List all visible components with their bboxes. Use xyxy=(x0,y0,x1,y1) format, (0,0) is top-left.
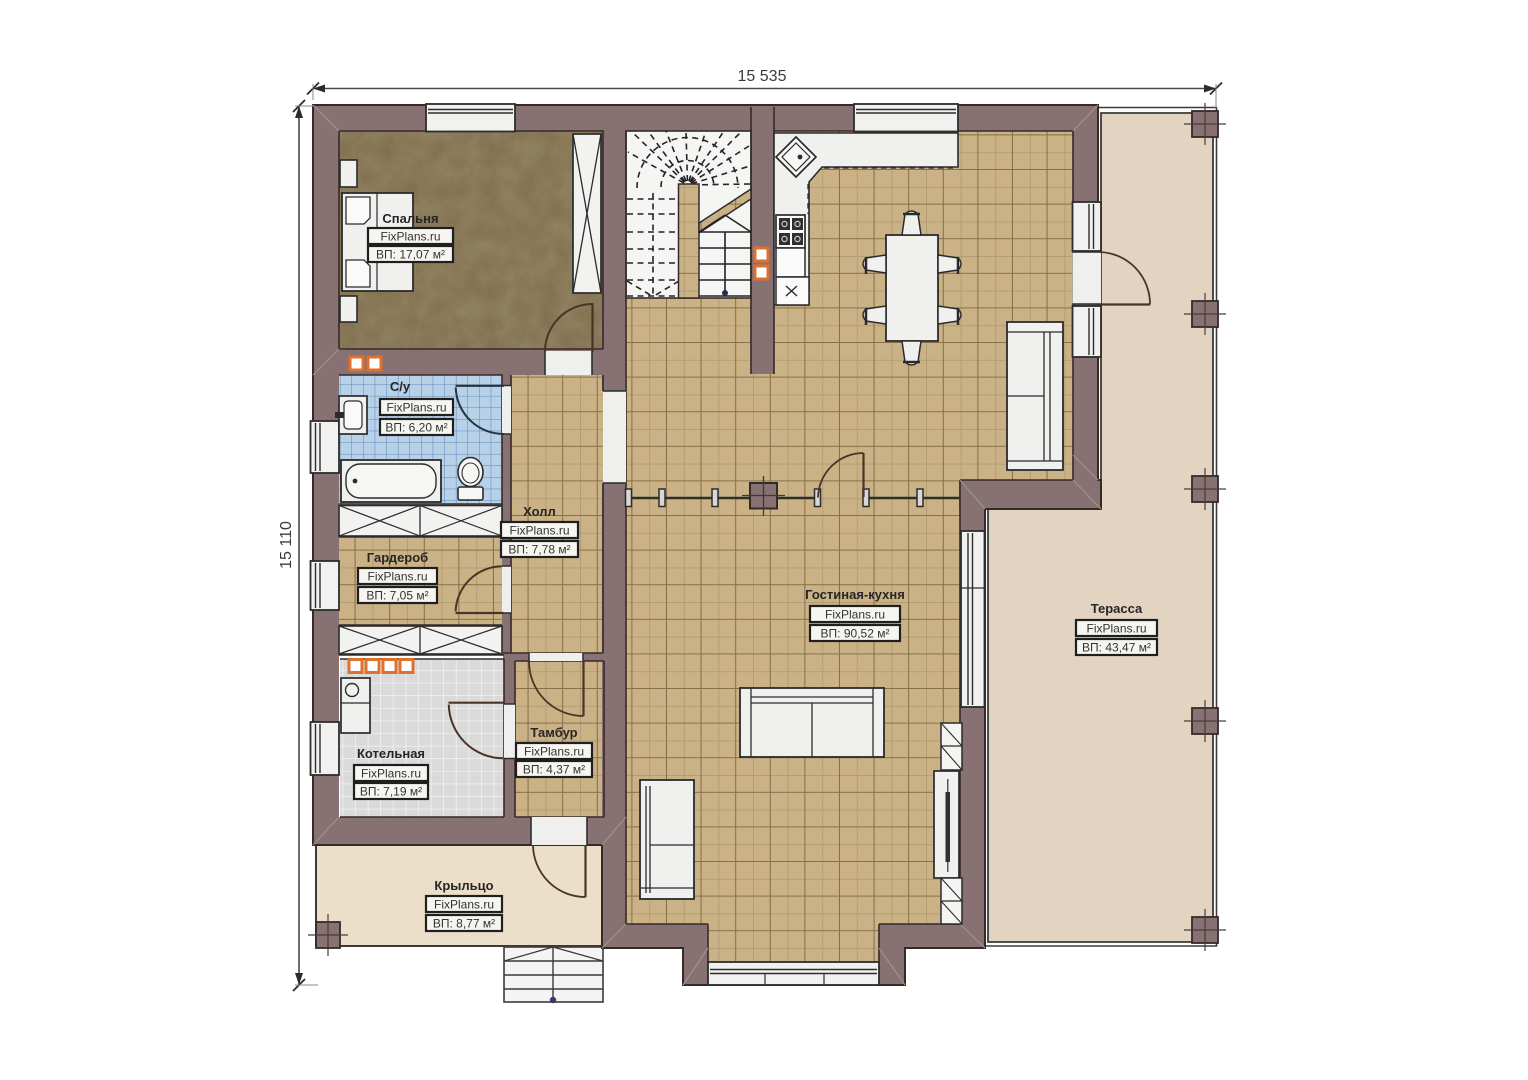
svg-text:FixPlans.ru: FixPlans.ru xyxy=(380,230,440,244)
svg-text:Холл: Холл xyxy=(523,504,556,519)
svg-text:Котельная: Котельная xyxy=(357,746,425,761)
svg-text:FixPlans.ru: FixPlans.ru xyxy=(825,608,885,622)
svg-text:С/у: С/у xyxy=(390,379,411,394)
svg-text:ВП: 4,37 м²: ВП: 4,37 м² xyxy=(523,763,585,777)
svg-text:15 535: 15 535 xyxy=(738,68,787,85)
svg-text:FixPlans.ru: FixPlans.ru xyxy=(434,898,494,912)
svg-text:ВП: 7,05 м²: ВП: 7,05 м² xyxy=(366,589,428,603)
svg-text:FixPlans.ru: FixPlans.ru xyxy=(1086,622,1146,636)
svg-text:ВП: 17,07 м²: ВП: 17,07 м² xyxy=(376,248,445,262)
svg-text:FixPlans.ru: FixPlans.ru xyxy=(361,767,421,781)
svg-text:FixPlans.ru: FixPlans.ru xyxy=(367,570,427,584)
svg-text:ВП: 6,20 м²: ВП: 6,20 м² xyxy=(385,421,447,435)
svg-text:ВП: 7,78 м²: ВП: 7,78 м² xyxy=(508,543,570,557)
svg-text:Гардероб: Гардероб xyxy=(367,550,428,565)
svg-text:Терасса: Терасса xyxy=(1091,601,1143,616)
svg-text:ВП: 43,47 м²: ВП: 43,47 м² xyxy=(1082,641,1151,655)
svg-text:ВП: 8,77 м²: ВП: 8,77 м² xyxy=(433,917,495,931)
svg-text:Гостиная-кухня: Гостиная-кухня xyxy=(805,587,905,602)
svg-text:Крыльцо: Крыльцо xyxy=(434,878,493,893)
svg-text:Спальня: Спальня xyxy=(382,211,438,226)
svg-text:ВП: 7,19 м²: ВП: 7,19 м² xyxy=(360,785,422,799)
svg-text:FixPlans.ru: FixPlans.ru xyxy=(386,401,446,415)
svg-text:Тамбур: Тамбур xyxy=(530,725,577,740)
svg-text:ВП: 90,52 м²: ВП: 90,52 м² xyxy=(821,627,890,641)
svg-text:FixPlans.ru: FixPlans.ru xyxy=(509,524,569,538)
svg-text:15 110: 15 110 xyxy=(278,521,295,569)
svg-text:FixPlans.ru: FixPlans.ru xyxy=(524,745,584,759)
